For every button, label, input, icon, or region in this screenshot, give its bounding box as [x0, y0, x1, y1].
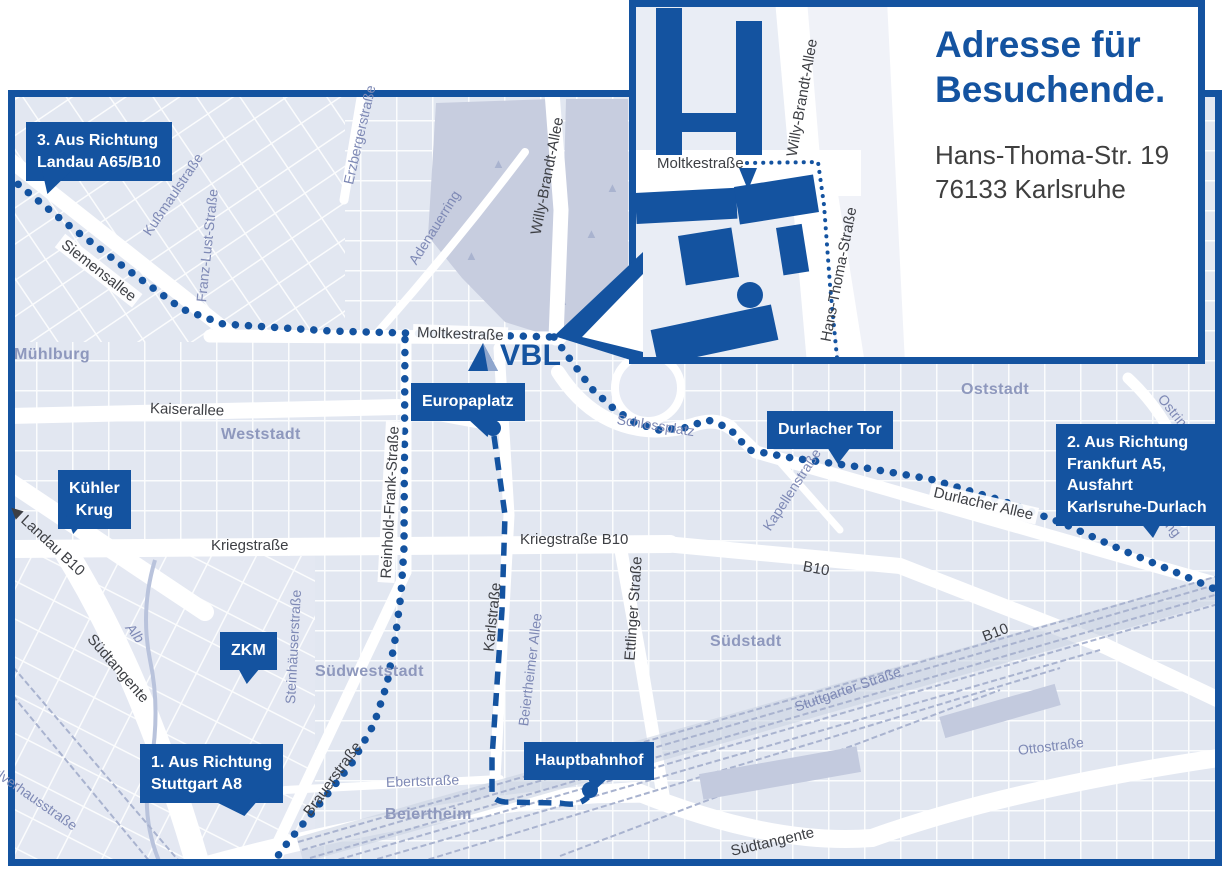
- svg-text:▲: ▲: [492, 156, 505, 171]
- callout-title-line: Adresse für: [935, 22, 1165, 67]
- svg-text:▲: ▲: [585, 226, 598, 241]
- svg-text:▲: ▲: [465, 248, 478, 263]
- callout-address-line: 76133 Karlsruhe: [935, 172, 1169, 206]
- badge-from-stuttgart: 1. Aus Richtung Stuttgart A8: [140, 744, 283, 803]
- inset-street-label-moltkestrasse: Moltkestraße: [657, 155, 744, 172]
- schlossplatz-circle: [615, 355, 681, 421]
- callout-title: Adresse für Besuchende.: [935, 22, 1165, 112]
- badge-line: Kühler: [69, 478, 120, 500]
- callout-address-line: Hans-Thoma-Str. 19: [935, 138, 1169, 172]
- vbl-logo: VBL: [468, 341, 562, 371]
- badge-hauptbahnhof: Hauptbahnhof: [524, 742, 654, 780]
- badge-europaplatz: Europaplatz: [411, 383, 525, 421]
- vbl-logo-triangle-icon: [468, 343, 498, 371]
- karlsruhe-directions-map: ▲▲ ▲▲▲: [0, 0, 1230, 874]
- callout-address: Hans-Thoma-Str. 19 76133 Karlsruhe: [935, 138, 1169, 207]
- badge-from-frankfurt: 2. Aus Richtung Frankfurt A5, Ausfahrt K…: [1056, 424, 1218, 526]
- svg-text:▲: ▲: [606, 180, 619, 195]
- badge-line: 3. Aus Richtung: [37, 130, 161, 152]
- badge-line: Stuttgart A8: [151, 774, 272, 796]
- badge-line: 1. Aus Richtung: [151, 752, 272, 774]
- badge-line: Landau A65/B10: [37, 152, 161, 174]
- badge-line: 2. Aus Richtung: [1067, 432, 1207, 454]
- callout-title-line: Besuchende.: [935, 67, 1165, 112]
- badge-durlacher-tor: Durlacher Tor: [767, 411, 893, 449]
- street-label-ebertstrasse: Ebertstraße: [386, 771, 460, 790]
- district-label-suedstadt: Südstadt: [710, 633, 782, 651]
- badge-line: Ausfahrt: [1067, 475, 1207, 497]
- street-label-kaiserallee: Kaiserallee: [150, 400, 225, 420]
- street-label-kriegstrasse: Kriegstraße: [211, 537, 289, 554]
- district-label-weststadt: Weststadt: [221, 426, 301, 444]
- badge-line: Karlsruhe-Durlach: [1067, 497, 1207, 519]
- badge-zkm: ZKM: [220, 632, 277, 670]
- district-label-beiertheim: Beiertheim: [385, 806, 472, 824]
- address-callout: Moltkestraße Willy-Brandt-Allee Hans-Tho…: [629, 0, 1205, 364]
- vbl-logo-text: VBL: [500, 341, 562, 371]
- district-label-oststadt: Oststadt: [961, 381, 1029, 399]
- street-label-kriegstrasse-b10: Kriegstraße B10: [520, 531, 628, 548]
- district-label-muehlburg: Mühlburg: [14, 346, 90, 364]
- badge-line: Frankfurt A5,: [1067, 454, 1207, 476]
- district-label-suedweststadt: Südweststadt: [315, 663, 424, 681]
